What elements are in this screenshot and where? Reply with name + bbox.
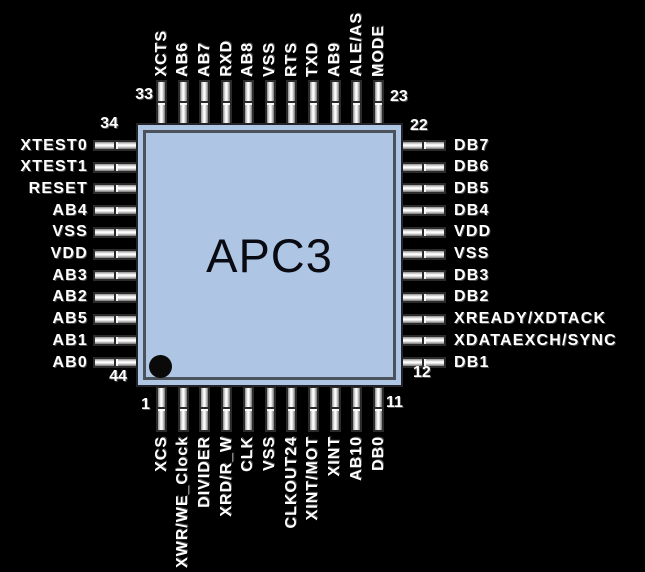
pin-right-4 xyxy=(401,205,446,216)
pin-label-XRD/R_W: XRD/R_W xyxy=(219,436,235,517)
pin-number-34: 34 xyxy=(94,116,118,132)
pin-number-1: 1 xyxy=(130,397,150,413)
pin-top-8 xyxy=(308,80,319,125)
pin-label-DB6: DB6 xyxy=(454,158,490,176)
pin-bottom-11 xyxy=(373,386,384,432)
pin-right-2 xyxy=(401,162,446,173)
pin-bottom-9 xyxy=(330,386,341,432)
pin-label-RESET: RESET xyxy=(29,180,88,198)
pin-label-AB0: AB0 xyxy=(52,354,88,372)
pin-label-XCS: XCS xyxy=(154,436,170,472)
pin-left-9 xyxy=(93,314,138,325)
pin-label-TXD: TXD xyxy=(305,42,321,77)
pin-label-ALE/AS: ALE/AS xyxy=(349,12,365,77)
pin-bottom-6 xyxy=(265,386,276,432)
pin-label-DIVIDER: DIVIDER xyxy=(197,436,213,508)
pin-label-DB7: DB7 xyxy=(454,137,490,155)
pin-label-XDATAEXCH/SYNC: XDATAEXCH/SYNC xyxy=(454,332,617,350)
pin-label-AB9: AB9 xyxy=(327,42,343,77)
pin-label-XINT/MOT: XINT/MOT xyxy=(305,436,321,520)
pin-label-XWR/WE_Clock: XWR/WE_Clock xyxy=(175,436,191,568)
pin-label-CLKOUT24: CLKOUT24 xyxy=(284,436,300,528)
pin-right-10 xyxy=(401,335,446,346)
pin-number-23: 23 xyxy=(390,89,408,105)
pin-label-AB6: AB6 xyxy=(175,42,191,77)
pin-left-1 xyxy=(93,140,138,151)
pin-label-DB5: DB5 xyxy=(454,180,490,198)
pin-top-5 xyxy=(243,80,254,125)
pin-number-33: 33 xyxy=(129,87,153,103)
pin-label-XREADY/XDTACK: XREADY/XDTACK xyxy=(454,310,606,328)
pin-right-7 xyxy=(401,270,446,281)
pin-right-9 xyxy=(401,314,446,325)
pin-number-11: 11 xyxy=(386,395,403,411)
pin-bottom-10 xyxy=(351,386,362,432)
chip-name: APC3 xyxy=(138,125,401,385)
pin-top-7 xyxy=(286,80,297,125)
pin-right-3 xyxy=(401,183,446,194)
pin-top-11 xyxy=(373,80,384,125)
pin-right-1 xyxy=(401,140,446,151)
pin-label-DB4: DB4 xyxy=(454,202,490,220)
pin-label-XCTS: XCTS xyxy=(154,30,170,77)
pin-bottom-7 xyxy=(286,386,297,432)
pin-label-AB2: AB2 xyxy=(52,288,88,306)
pin-left-4 xyxy=(93,205,138,216)
pin-right-6 xyxy=(401,249,446,260)
pin-top-1 xyxy=(156,80,167,125)
pin-label-AB10: AB10 xyxy=(349,436,365,481)
pin-number-12: 12 xyxy=(413,365,431,381)
pin-label-DB3: DB3 xyxy=(454,267,490,285)
pin-label-VSS: VSS xyxy=(262,436,278,471)
chip-body: APC3 xyxy=(136,123,403,387)
pin-top-3 xyxy=(199,80,210,125)
pin-left-6 xyxy=(93,249,138,260)
pin-label-AB3: AB3 xyxy=(52,267,88,285)
pin-number-22: 22 xyxy=(410,118,428,134)
pin-label-AB4: AB4 xyxy=(52,202,88,220)
pin-bottom-4 xyxy=(221,386,232,432)
pin-label-DB2: DB2 xyxy=(454,288,490,306)
pin-left-10 xyxy=(93,335,138,346)
pin-top-10 xyxy=(351,80,362,125)
pin-left-8 xyxy=(93,292,138,303)
pin1-indicator-dot xyxy=(149,355,172,378)
pin-label-DB0: DB0 xyxy=(371,436,387,471)
pin-label-VDD: VDD xyxy=(454,223,491,241)
pin-top-4 xyxy=(221,80,232,125)
pin-label-AB8: AB8 xyxy=(240,42,256,77)
pin-top-2 xyxy=(178,80,189,125)
pin-bottom-1 xyxy=(156,386,167,432)
pin-right-5 xyxy=(401,227,446,238)
pin-left-11 xyxy=(93,357,138,368)
pin-bottom-3 xyxy=(199,386,210,432)
pin-label-AB1: AB1 xyxy=(52,332,88,350)
pin-label-XTEST0: XTEST0 xyxy=(20,137,88,155)
pin-number-44: 44 xyxy=(103,369,127,385)
pin-bottom-5 xyxy=(243,386,254,432)
chip-pinout-diagram: APC3 33 23 34 44 22 12 1 11 XCTSAB6AB7RX… xyxy=(0,0,645,572)
pin-label-AB7: AB7 xyxy=(197,42,213,77)
pin-label-DB1: DB1 xyxy=(454,354,490,372)
pin-label-VDD: VDD xyxy=(51,245,88,263)
pin-top-6 xyxy=(265,80,276,125)
pin-left-3 xyxy=(93,183,138,194)
pin-label-CLK: CLK xyxy=(240,436,256,472)
pin-left-5 xyxy=(93,227,138,238)
pin-bottom-2 xyxy=(178,386,189,432)
pin-top-9 xyxy=(330,80,341,125)
pin-label-MODE: MODE xyxy=(371,25,387,77)
pin-right-8 xyxy=(401,292,446,303)
pin-label-VSS: VSS xyxy=(454,245,490,263)
pin-label-XTEST1: XTEST1 xyxy=(20,158,88,176)
pin-label-RXD: RXD xyxy=(219,40,235,77)
pin-label-XINT: XINT xyxy=(327,436,343,476)
pin-label-VSS: VSS xyxy=(52,223,88,241)
pin-label-VSS: VSS xyxy=(262,42,278,77)
pin-label-RTS: RTS xyxy=(284,42,300,77)
pin-left-7 xyxy=(93,270,138,281)
pin-bottom-8 xyxy=(308,386,319,432)
pin-left-2 xyxy=(93,162,138,173)
pin-label-AB5: AB5 xyxy=(52,310,88,328)
